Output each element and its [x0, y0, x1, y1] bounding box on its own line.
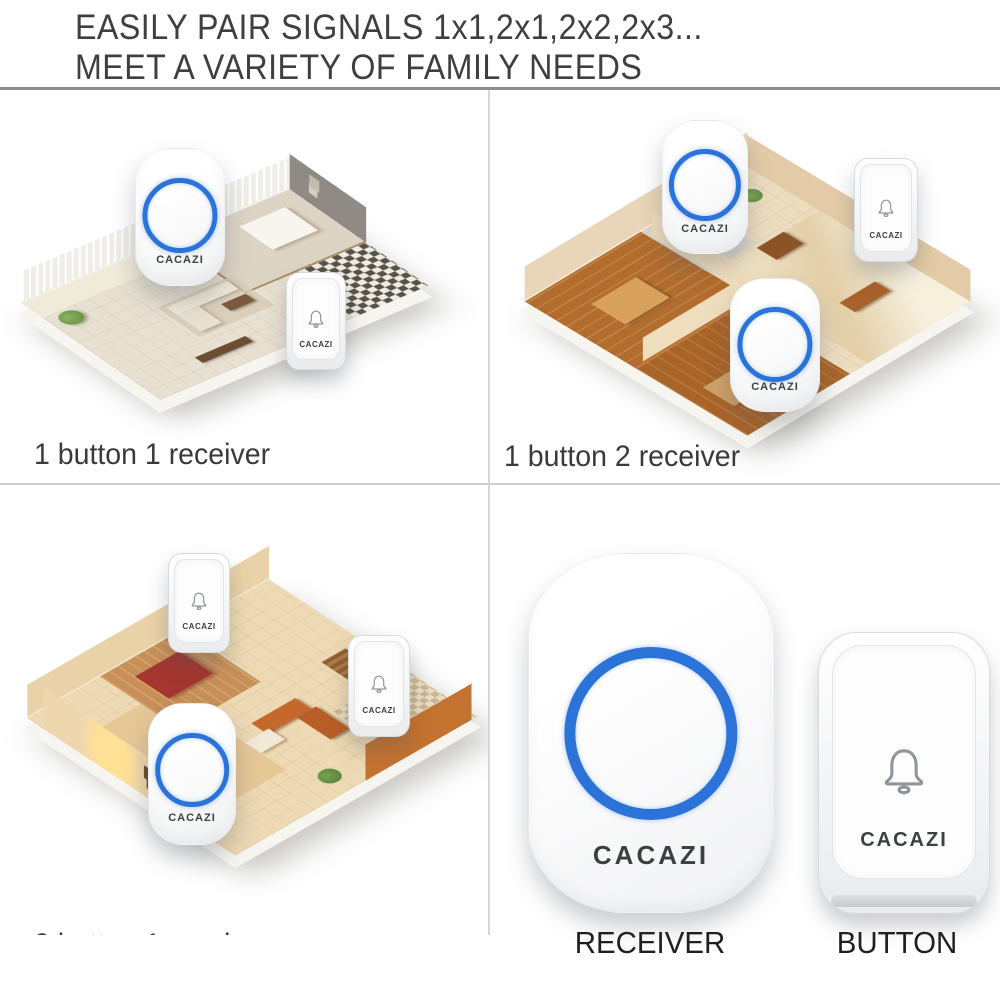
receiver-label: RECEIVER [527, 925, 774, 961]
bell-icon [187, 589, 211, 613]
panel-1button-2receiver: CACAZI CACAZI CACAZI 1 button 2 receiver [490, 90, 1000, 483]
product-infographic: EASILY PAIR SIGNALS 1x1,2x1,2x2,2x3... M… [0, 0, 1000, 1000]
button-face: CACAZI [354, 641, 404, 727]
bell-icon [304, 307, 328, 331]
header: EASILY PAIR SIGNALS 1x1,2x1,2x2,2x3... M… [0, 0, 1000, 88]
caption-2x1: 2 button 1 receiver [34, 928, 270, 935]
receiver-device: CACAZI [730, 278, 820, 412]
receiver-device: CACAZI [662, 120, 748, 254]
header-line-1: EASILY PAIR SIGNALS 1x1,2x1,2x2,2x3... [75, 8, 703, 48]
brand-logo: CACAZI [861, 231, 911, 240]
blue-led-ring [155, 733, 229, 807]
button-base [831, 895, 977, 907]
bell-icon [874, 196, 898, 220]
doorbell-button-device: CACAZI [286, 272, 346, 370]
receiver-device: CACAZI [135, 148, 225, 286]
doorbell-button-device: CACAZI [168, 553, 230, 653]
panel-products: CACAZI CACAZI RECEIVER BUTTON [490, 485, 1000, 1000]
receiver-device: CACAZI [148, 703, 236, 845]
receiver-product: CACAZI [528, 553, 774, 913]
brand-logo: CACAZI [149, 812, 235, 824]
tv-cabinet [194, 336, 253, 363]
header-line-2: MEET A VARIETY OF FAMILY NEEDS [75, 48, 642, 88]
bell-icon [367, 672, 391, 696]
blue-led-ring [564, 647, 737, 820]
brand-logo: CACAZI [293, 340, 339, 349]
button-face: CACAZI [292, 278, 340, 360]
button-face: CACAZI [832, 645, 976, 879]
brand-logo: CACAZI [175, 622, 223, 631]
brand-logo: CACAZI [529, 840, 773, 871]
brand-logo: CACAZI [136, 254, 224, 266]
button-face: CACAZI [174, 559, 224, 643]
blue-led-ring [669, 149, 741, 221]
sofa [166, 281, 239, 315]
doorbell-button-device: CACAZI [854, 158, 918, 262]
blue-led-ring [737, 307, 812, 382]
doorbell-button-device: CACAZI [348, 635, 410, 737]
doorbell-button-product: CACAZI [818, 632, 990, 914]
button-label: BUTTON [807, 925, 988, 961]
bell-icon [873, 740, 935, 802]
brand-logo: CACAZI [833, 829, 975, 852]
button-face: CACAZI [860, 164, 912, 252]
caption-1x2: 1 button 2 receiver [504, 440, 740, 474]
brand-logo: CACAZI [355, 706, 403, 715]
brand-logo: CACAZI [663, 223, 747, 235]
panel-2button-1receiver: CACAZI CACAZI CACAZI 2 button 1 receiver [0, 485, 488, 935]
plant [313, 765, 347, 786]
brand-logo: CACAZI [731, 381, 819, 393]
sofa [251, 698, 311, 734]
caption-1x1: 1 button 1 receiver [34, 438, 270, 472]
panel-1button-1receiver: CACAZI CACAZI 1 button 1 receiver [0, 90, 488, 483]
blue-led-ring [142, 178, 217, 253]
